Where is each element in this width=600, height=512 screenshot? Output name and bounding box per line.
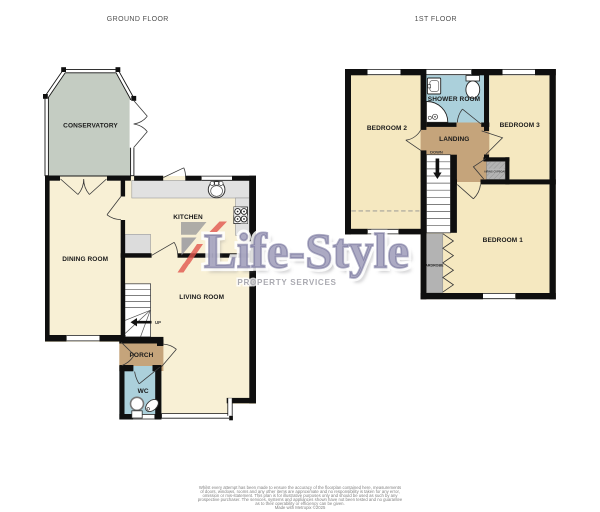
svg-text:WC: WC: [138, 388, 149, 395]
svg-text:PORCH: PORCH: [130, 352, 154, 359]
svg-text:SHOWER ROOM: SHOWER ROOM: [428, 96, 480, 103]
svg-text:Made with Metropix ©2025: Made with Metropix ©2025: [275, 505, 326, 510]
svg-text:LIVING ROOM: LIVING ROOM: [179, 294, 224, 301]
svg-text:LANDING: LANDING: [439, 136, 469, 143]
svg-text:KITCHEN: KITCHEN: [173, 214, 203, 221]
svg-text:UP: UP: [155, 320, 161, 325]
svg-text:AIRING CUPBOARD: AIRING CUPBOARD: [484, 170, 508, 173]
svg-text:BEDROOM 2: BEDROOM 2: [367, 125, 408, 132]
svg-text:BEDROOM 1: BEDROOM 1: [483, 237, 524, 244]
svg-text:BEDROOM 3: BEDROOM 3: [500, 122, 541, 129]
svg-text:1ST FLOOR: 1ST FLOOR: [415, 16, 457, 23]
svg-text:DOWN: DOWN: [430, 150, 443, 155]
svg-text:CONSERVATORY: CONSERVATORY: [63, 123, 118, 130]
svg-text:GROUND FLOOR: GROUND FLOOR: [107, 16, 169, 23]
svg-text:DINING ROOM: DINING ROOM: [62, 256, 108, 263]
svg-text:Life-Style: Life-Style: [204, 224, 409, 279]
svg-text:PROPERTY SERVICES: PROPERTY SERVICES: [237, 278, 336, 287]
